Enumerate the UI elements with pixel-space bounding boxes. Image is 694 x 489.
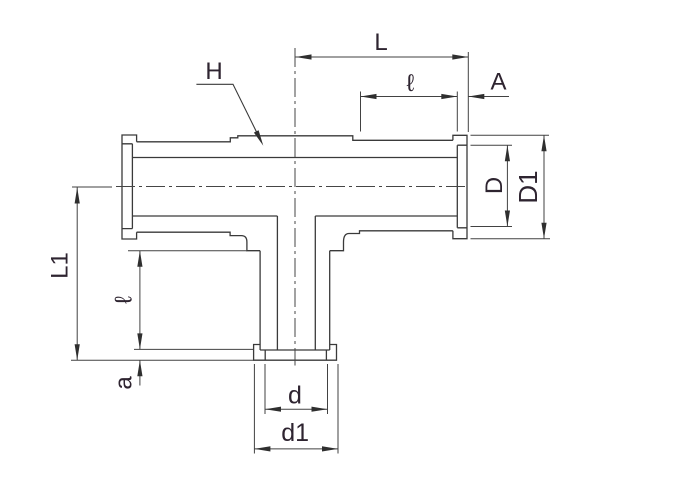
svg-text:L1: L1 [47, 252, 74, 279]
svg-text:d: d [288, 382, 302, 410]
svg-text:D: D [481, 177, 508, 194]
svg-text:ℓ: ℓ [110, 296, 137, 304]
svg-text:d1: d1 [281, 419, 309, 447]
svg-text:H: H [205, 58, 222, 85]
svg-text:ℓ: ℓ [407, 70, 415, 97]
svg-text:A: A [490, 68, 506, 95]
svg-text:D1: D1 [513, 170, 543, 203]
svg-text:L: L [374, 29, 387, 56]
svg-text:a: a [110, 376, 137, 390]
